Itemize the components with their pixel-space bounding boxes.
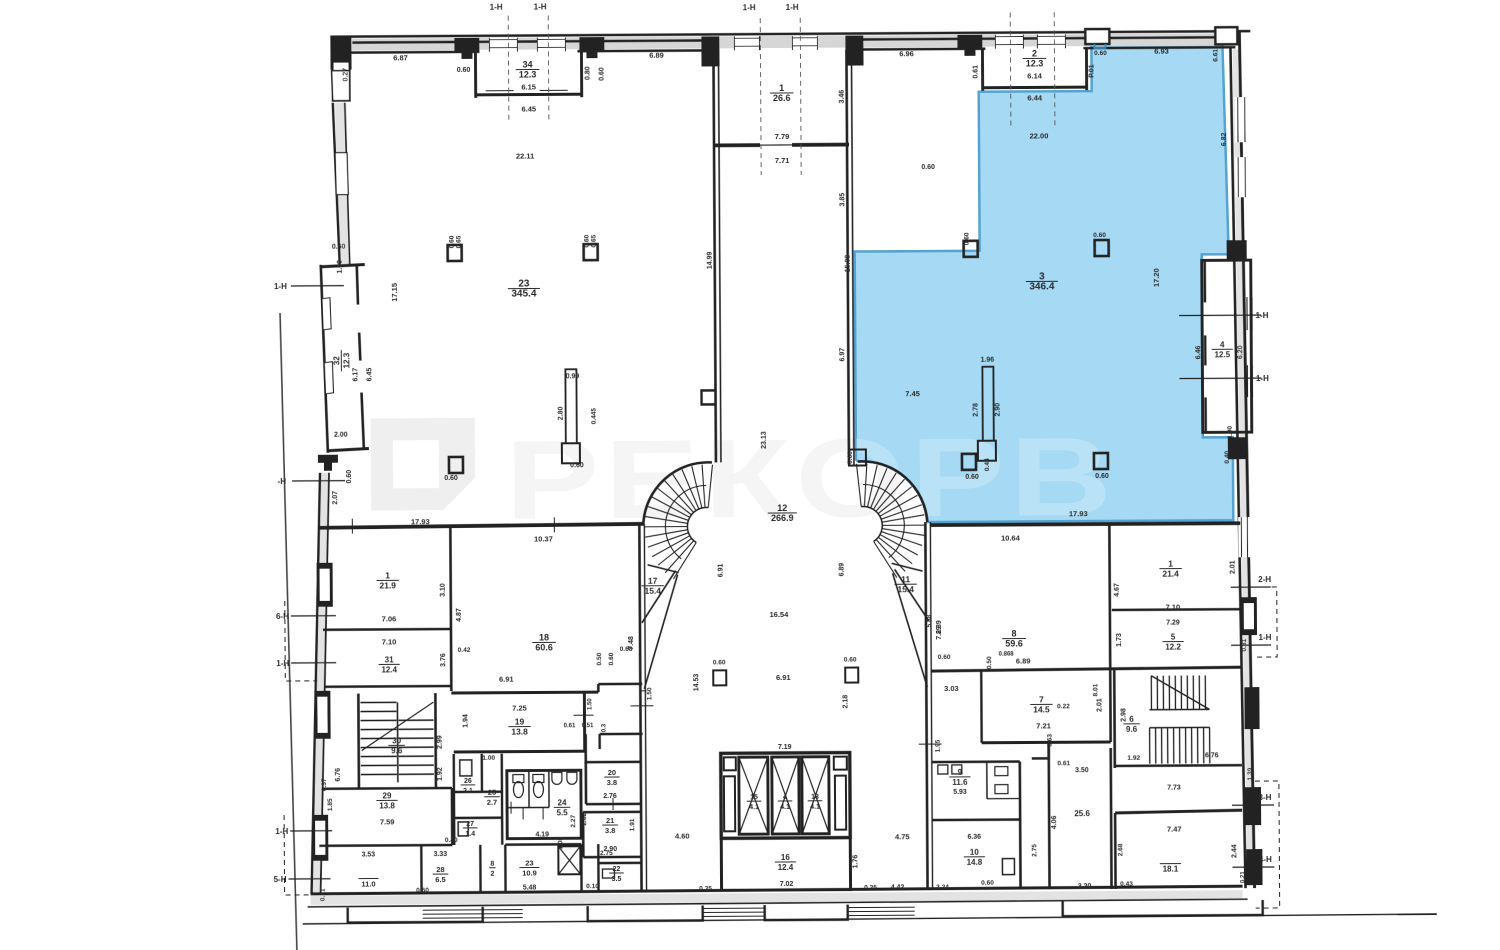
svg-text:10: 10: [970, 848, 980, 857]
svg-text:15.08: 15.08: [845, 255, 852, 273]
svg-text:1-Н: 1-Н: [276, 659, 289, 668]
svg-text:2.75: 2.75: [1031, 844, 1038, 857]
svg-text:17.93: 17.93: [411, 517, 430, 526]
svg-text:6.5: 6.5: [435, 875, 445, 884]
svg-text:19: 19: [515, 717, 525, 727]
svg-text:18: 18: [539, 632, 549, 642]
svg-text:0.50: 0.50: [986, 656, 993, 669]
svg-text:0.80: 0.80: [585, 66, 592, 80]
svg-text:0.51: 0.51: [582, 723, 594, 729]
svg-text:1-Н: 1-Н: [1259, 633, 1272, 642]
svg-text:1-Н: 1-Н: [490, 3, 503, 12]
svg-text:12: 12: [777, 503, 787, 513]
svg-text:14.8: 14.8: [967, 858, 983, 867]
svg-text:7.25: 7.25: [512, 704, 527, 713]
svg-text:11.0: 11.0: [361, 879, 375, 888]
svg-text:29: 29: [383, 791, 393, 800]
svg-text:4: 4: [1220, 340, 1225, 349]
svg-text:1.95: 1.95: [935, 739, 942, 752]
svg-text:0.60: 0.60: [444, 475, 458, 482]
svg-text:3.03: 3.03: [944, 684, 959, 693]
svg-text:5: 5: [1171, 633, 1176, 642]
svg-text:6.17: 6.17: [352, 368, 359, 382]
svg-text:2.24: 2.24: [936, 884, 949, 891]
svg-text:6.44: 6.44: [1027, 93, 1042, 102]
svg-text:0.60: 0.60: [921, 164, 935, 171]
svg-text:26: 26: [464, 778, 472, 785]
svg-text:6.61: 6.61: [1212, 49, 1219, 62]
svg-text:8.01: 8.01: [1092, 683, 1099, 696]
svg-text:0.44: 0.44: [984, 458, 991, 471]
svg-text:60.6: 60.6: [535, 642, 553, 652]
svg-text:22: 22: [613, 866, 621, 873]
svg-text:7.45: 7.45: [905, 389, 920, 398]
svg-text:6.93: 6.93: [1154, 47, 1169, 56]
svg-text:6.15: 6.15: [521, 82, 536, 91]
svg-text:4.1: 4.1: [810, 804, 820, 811]
svg-text:0.65: 0.65: [456, 235, 463, 248]
svg-text:2.01: 2.01: [1230, 560, 1237, 574]
svg-text:12.3: 12.3: [519, 69, 537, 79]
svg-text:4.42: 4.42: [891, 884, 905, 891]
svg-text:12.3: 12.3: [1026, 58, 1044, 68]
svg-text:26.6: 26.6: [773, 93, 791, 103]
svg-text:21: 21: [606, 816, 614, 825]
svg-text:7.79: 7.79: [775, 132, 790, 141]
svg-text:2.90: 2.90: [995, 403, 1002, 417]
svg-text:0.60: 0.60: [1094, 50, 1107, 57]
svg-text:3.20: 3.20: [1078, 883, 1092, 890]
svg-text:4.87: 4.87: [456, 608, 463, 622]
svg-text:7.10: 7.10: [1166, 603, 1181, 612]
svg-text:12.2: 12.2: [1165, 643, 1181, 652]
svg-text:7.06: 7.06: [382, 614, 397, 623]
svg-text:32: 32: [332, 356, 341, 366]
svg-text:2.1: 2.1: [463, 788, 473, 795]
svg-text:0.35: 0.35: [699, 885, 712, 892]
svg-text:5.93: 5.93: [953, 789, 967, 796]
svg-text:4.1: 4.1: [780, 804, 790, 811]
svg-text:14.5: 14.5: [1033, 704, 1050, 714]
svg-text:6-Н: 6-Н: [276, 612, 289, 621]
svg-text:0.60: 0.60: [457, 67, 471, 74]
svg-text:14.99: 14.99: [707, 252, 714, 270]
svg-text:1.91: 1.91: [629, 818, 636, 831]
svg-text:21.4: 21.4: [1162, 569, 1179, 579]
svg-text:24: 24: [558, 798, 568, 807]
svg-text:9: 9: [958, 768, 963, 777]
svg-text:6.14: 6.14: [1027, 71, 1042, 80]
svg-text:0.60: 0.60: [449, 235, 456, 248]
svg-text:31: 31: [385, 655, 395, 664]
svg-text:6.45: 6.45: [521, 104, 536, 113]
svg-text:0.60: 0.60: [1095, 473, 1109, 480]
svg-text:1.08: 1.08: [557, 837, 564, 850]
svg-text:2.00: 2.00: [334, 432, 348, 439]
svg-text:2.75: 2.75: [600, 850, 613, 857]
svg-text:6.89: 6.89: [1016, 656, 1031, 665]
svg-text:1-Н: 1-Н: [1256, 374, 1269, 383]
svg-text:11: 11: [901, 574, 910, 584]
svg-text:6.89: 6.89: [649, 51, 664, 60]
svg-text:3.5: 3.5: [612, 876, 622, 883]
svg-text:7.73: 7.73: [1167, 785, 1181, 792]
svg-text:2.98: 2.98: [1120, 708, 1127, 722]
svg-text:0.40: 0.40: [445, 837, 458, 844]
svg-text:1.50: 1.50: [587, 698, 593, 710]
svg-text:7.02: 7.02: [780, 881, 794, 888]
svg-text:266.9: 266.9: [771, 513, 794, 523]
svg-text:1-Н: 1-Н: [743, 3, 756, 12]
svg-text:6.91: 6.91: [776, 673, 791, 682]
svg-text:10.37: 10.37: [534, 534, 553, 543]
svg-text:1.92: 1.92: [437, 767, 444, 781]
svg-text:8: 8: [490, 861, 494, 868]
svg-text:22.11: 22.11: [516, 151, 534, 160]
svg-text:1-Н: 1-Н: [786, 3, 799, 12]
svg-text:2.07: 2.07: [332, 491, 339, 505]
svg-text:2: 2: [490, 871, 494, 878]
svg-text:0.60: 0.60: [1093, 232, 1106, 239]
svg-text:3.85: 3.85: [839, 193, 846, 207]
svg-text:0.42: 0.42: [458, 647, 471, 654]
svg-text:1-Н: 1-Н: [275, 827, 288, 836]
svg-text:0.68: 0.68: [620, 646, 633, 653]
svg-text:6.97: 6.97: [839, 348, 846, 362]
svg-text:0.3: 0.3: [602, 723, 608, 732]
svg-text:2-Н: 2-Н: [1258, 575, 1271, 584]
svg-text:3.33: 3.33: [434, 851, 448, 858]
svg-text:0.61: 0.61: [973, 65, 980, 79]
svg-text:0.37: 0.37: [321, 778, 328, 791]
svg-text:2: 2: [1032, 48, 1037, 58]
svg-text:1.96: 1.96: [980, 357, 994, 364]
svg-text:0.60: 0.60: [964, 232, 971, 245]
svg-text:1.69: 1.69: [337, 260, 344, 274]
svg-text:7.10: 7.10: [382, 637, 397, 646]
svg-text:1.00: 1.00: [1227, 426, 1234, 439]
svg-text:0.60: 0.60: [346, 470, 353, 484]
svg-text:0.21: 0.21: [1240, 871, 1246, 883]
svg-text:13.8: 13.8: [511, 727, 528, 737]
svg-text:-Н: -Н: [278, 477, 287, 486]
svg-text:3.76: 3.76: [440, 653, 447, 667]
svg-text:5.48: 5.48: [523, 884, 537, 891]
svg-text:7.71: 7.71: [775, 156, 790, 165]
svg-text:0.60: 0.60: [713, 659, 726, 666]
svg-text:3.8: 3.8: [605, 826, 615, 835]
svg-text:0.27: 0.27: [343, 68, 350, 82]
svg-text:17: 17: [648, 576, 658, 586]
svg-text:6.96: 6.96: [899, 49, 914, 58]
svg-text:6.91: 6.91: [499, 675, 514, 684]
svg-text:12.4: 12.4: [778, 863, 794, 872]
svg-text:0.60: 0.60: [570, 462, 584, 469]
svg-text:4-Н: 4-Н: [1259, 855, 1272, 864]
svg-text:1.39: 1.39: [1247, 767, 1254, 780]
svg-text:22.00: 22.00: [1030, 131, 1049, 140]
svg-text:346.4: 346.4: [1029, 281, 1055, 292]
svg-text:12.4: 12.4: [381, 665, 397, 674]
svg-text:0.60: 0.60: [844, 657, 857, 664]
svg-text:2.68: 2.68: [1117, 843, 1124, 856]
svg-text:7.19: 7.19: [778, 744, 792, 751]
svg-text:0.60: 0.60: [599, 67, 606, 81]
svg-text:6.46: 6.46: [1195, 345, 1202, 359]
svg-text:3.50: 3.50: [1075, 767, 1089, 774]
svg-text:0.61: 0.61: [564, 723, 576, 729]
svg-text:0.60: 0.60: [965, 474, 979, 481]
svg-text:6.45: 6.45: [366, 368, 373, 382]
svg-text:2.89: 2.89: [936, 620, 943, 634]
svg-text:0.60: 0.60: [416, 887, 429, 894]
svg-text:4.67: 4.67: [1114, 583, 1121, 597]
svg-text:1-Н: 1-Н: [274, 282, 287, 291]
svg-text:4.1: 4.1: [749, 804, 759, 811]
svg-text:2.7: 2.7: [487, 798, 497, 807]
svg-text:3.53: 3.53: [362, 851, 376, 858]
svg-text:1-Н: 1-Н: [534, 2, 547, 11]
svg-text:2.99: 2.99: [437, 735, 444, 749]
svg-text:3.46: 3.46: [839, 90, 846, 104]
svg-text:0.60: 0.60: [332, 244, 346, 251]
svg-text:Р.01: Р.01: [1089, 64, 1096, 78]
svg-text:3.8: 3.8: [607, 778, 617, 787]
svg-text:13: 13: [811, 794, 819, 801]
svg-text:0.40: 0.40: [1224, 451, 1231, 464]
svg-text:345.4: 345.4: [511, 288, 537, 299]
svg-text:2.18: 2.18: [842, 695, 849, 709]
svg-text:0.35: 0.35: [864, 884, 877, 891]
svg-text:0.60: 0.60: [584, 234, 591, 247]
svg-text:0.445: 0.445: [591, 408, 598, 425]
svg-text:30: 30: [392, 736, 402, 745]
svg-text:2.78: 2.78: [973, 403, 980, 417]
svg-text:1: 1: [779, 83, 784, 93]
svg-text:7.47: 7.47: [1167, 825, 1182, 834]
svg-text:27: 27: [466, 821, 474, 828]
svg-text:6.82: 6.82: [1221, 132, 1228, 146]
svg-text:23.13: 23.13: [761, 431, 768, 449]
svg-text:9.6: 9.6: [1126, 725, 1138, 734]
svg-text:0.22: 0.22: [1057, 703, 1070, 710]
svg-text:0.43: 0.43: [1120, 881, 1133, 888]
svg-text:6.91: 6.91: [718, 563, 725, 577]
svg-text:25.6: 25.6: [1074, 809, 1090, 818]
svg-text:6.36: 6.36: [967, 834, 981, 841]
svg-text:34: 34: [522, 60, 532, 70]
svg-text:0.60: 0.60: [608, 652, 615, 665]
svg-text:2.27: 2.27: [570, 815, 577, 828]
svg-text:1.00: 1.00: [482, 755, 495, 762]
svg-text:28: 28: [436, 865, 444, 874]
svg-text:0.10: 0.10: [586, 883, 599, 890]
svg-text:17.93: 17.93: [1069, 509, 1088, 518]
svg-text:7: 7: [1039, 694, 1044, 704]
svg-text:1.85: 1.85: [327, 798, 334, 811]
svg-text:6.76: 6.76: [1205, 752, 1219, 759]
svg-text:1: 1: [1168, 559, 1173, 569]
svg-text:0.99: 0.99: [566, 373, 580, 380]
svg-text:0.868: 0.868: [999, 652, 1015, 658]
svg-text:15.4: 15.4: [897, 584, 914, 594]
svg-text:4.60: 4.60: [675, 832, 690, 841]
svg-text:12.5: 12.5: [1214, 350, 1230, 359]
svg-text:1.50: 1.50: [646, 687, 653, 700]
svg-text:2.01: 2.01: [1096, 698, 1103, 712]
svg-text:18.1: 18.1: [1163, 865, 1179, 874]
svg-text:6.89: 6.89: [839, 563, 846, 577]
svg-text:0.61: 0.61: [1057, 760, 1070, 767]
svg-text:4.19: 4.19: [535, 831, 549, 838]
svg-text:0.60: 0.60: [847, 451, 854, 464]
svg-text:6.76: 6.76: [335, 768, 342, 782]
svg-text:7.29: 7.29: [1166, 620, 1180, 627]
svg-text:0.31: 0.31: [1241, 638, 1248, 651]
svg-text:14.53: 14.53: [693, 674, 700, 692]
svg-text:10.9: 10.9: [522, 868, 537, 877]
svg-text:1.4: 1.4: [465, 831, 475, 838]
svg-text:17.15: 17.15: [390, 283, 399, 302]
svg-text:25: 25: [488, 788, 496, 797]
svg-text:5.5: 5.5: [557, 808, 569, 817]
svg-text:13.8: 13.8: [379, 801, 395, 810]
svg-text:1: 1: [385, 570, 390, 580]
svg-text:0.60: 0.60: [938, 654, 951, 661]
svg-text:6.87: 6.87: [393, 53, 408, 62]
svg-text:1.92: 1.92: [1127, 755, 1140, 762]
svg-text:4.75: 4.75: [895, 832, 910, 841]
svg-text:1-Н: 1-Н: [1256, 311, 1269, 320]
svg-text:10.64: 10.64: [1001, 534, 1021, 543]
svg-text:3.10: 3.10: [440, 583, 447, 597]
svg-text:0.63: 0.63: [1047, 734, 1054, 747]
svg-text:2.02: 2.02: [581, 812, 588, 825]
svg-text:0.21: 0.21: [320, 888, 327, 901]
svg-text:23: 23: [525, 859, 533, 868]
svg-text:7.21: 7.21: [1036, 721, 1051, 730]
svg-text:7.59: 7.59: [380, 817, 395, 826]
svg-text:2.76: 2.76: [603, 793, 617, 800]
svg-text:6: 6: [1129, 715, 1134, 724]
svg-text:4: 4: [783, 794, 787, 801]
svg-text:2.80: 2.80: [558, 406, 565, 420]
svg-text:20: 20: [608, 768, 616, 777]
svg-text:5.88: 5.88: [926, 614, 933, 627]
svg-text:6.20: 6.20: [1237, 345, 1244, 359]
svg-text:1.73: 1.73: [1116, 633, 1123, 647]
svg-text:3-Н: 3-Н: [1259, 793, 1272, 802]
svg-text:21.9: 21.9: [379, 580, 396, 590]
svg-text:17.20: 17.20: [1152, 268, 1161, 287]
svg-text:11.6: 11.6: [952, 778, 968, 787]
svg-text:16: 16: [781, 853, 791, 862]
svg-text:0.60: 0.60: [981, 880, 994, 887]
svg-text:0.65: 0.65: [591, 234, 598, 247]
svg-text:15: 15: [750, 794, 758, 801]
svg-text:1.76: 1.76: [852, 855, 859, 869]
svg-text:15.4: 15.4: [644, 586, 661, 596]
svg-text:2.44: 2.44: [1231, 844, 1238, 858]
svg-text:8: 8: [1011, 629, 1016, 639]
svg-text:12.3: 12.3: [342, 352, 351, 368]
svg-text:59.6: 59.6: [1005, 639, 1023, 649]
svg-text:9.6: 9.6: [391, 746, 403, 755]
svg-text:16.54: 16.54: [769, 610, 789, 619]
svg-text:0.50: 0.50: [596, 652, 603, 665]
svg-text:4.06: 4.06: [1051, 815, 1058, 829]
svg-text:1.94: 1.94: [462, 714, 469, 728]
